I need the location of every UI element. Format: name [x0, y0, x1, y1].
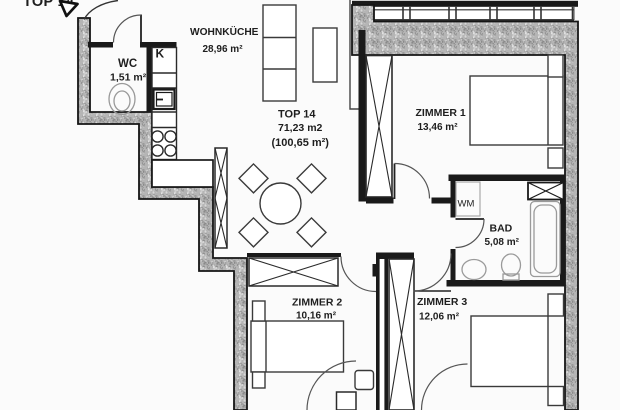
svg-text:12,06 m²: 12,06 m² [419, 312, 460, 323]
svg-text:5,08 m²: 5,08 m² [485, 237, 520, 248]
svg-text:1,51 m²: 1,51 m² [110, 72, 147, 84]
svg-text:13,46 m²: 13,46 m² [418, 122, 459, 133]
svg-text:TOP 14: TOP 14 [278, 109, 316, 121]
svg-text:K: K [156, 47, 165, 61]
svg-text:ZIMMER 1: ZIMMER 1 [416, 107, 466, 119]
svg-text:WM: WM [458, 199, 475, 210]
svg-text:BAD: BAD [490, 223, 513, 235]
svg-text:28,96 m²: 28,96 m² [203, 44, 244, 55]
svg-text:71,23 m2: 71,23 m2 [278, 122, 323, 134]
svg-text:ZIMMER 3: ZIMMER 3 [417, 296, 467, 308]
svg-text:WOHNKÜCHE: WOHNKÜCHE [190, 25, 259, 38]
svg-text:ZIMMER 2: ZIMMER 2 [292, 297, 342, 309]
svg-text:WC: WC [118, 58, 137, 70]
svg-text:10,16 m²: 10,16 m² [296, 311, 337, 322]
svg-text:(100,65 m²): (100,65 m²) [272, 137, 330, 149]
